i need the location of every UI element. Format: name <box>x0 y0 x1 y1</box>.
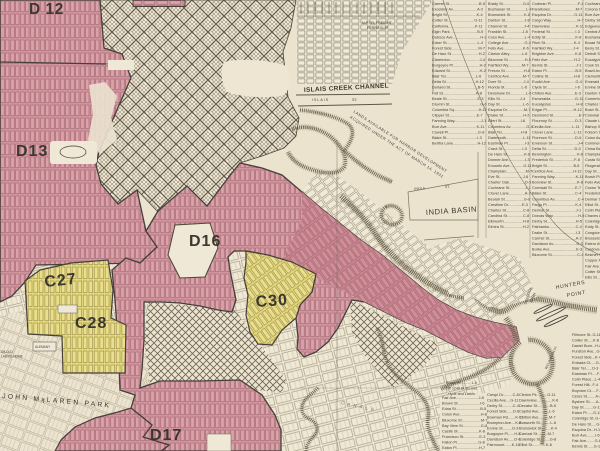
svg-text:ISLAIS: ISLAIS <box>312 98 329 102</box>
svg-text:Off 1240 Bush, bet.: Off 1240 Bush, bet. <box>446 387 478 391</box>
svg-text:D13: D13 <box>16 143 48 160</box>
svg-text:Fillmore St..G-11Collier St...: Fillmore St..G-11Collier St.....K-8Danie… <box>572 333 600 449</box>
svg-text:Brady St...................G-6: Brady St...................G-6Buchanan S… <box>488 2 534 229</box>
svg-text:Fair Ave.....................J: Fair Ave.....................J-8Brown St… <box>442 396 488 450</box>
svg-text:Cochrane St.....G-8Corona St..: Cochrane St.....G-8Corona St........K-8B… <box>585 2 600 279</box>
svg-text:Hyde and Larkin.: Hyde and Larkin. <box>448 392 476 396</box>
svg-text:FERRY SLIP: FERRY SLIP <box>367 26 388 30</box>
svg-text:Carmel St.....................: Carmel St............................B-5… <box>432 2 487 146</box>
svg-text:ST.: ST. <box>445 185 450 189</box>
svg-text:D 12: D 12 <box>29 1 64 18</box>
svg-text:Crespi Dr.........C-8Cecilia A: Crespi Dr.........C-8Cecilia Ave....G-11… <box>487 393 523 447</box>
svg-text:C30: C30 <box>255 292 288 311</box>
svg-text:CA OLD: CA OLD <box>1 350 13 354</box>
svg-text:D17: D17 <box>150 427 182 444</box>
svg-text:Broad Pl. ........ 1-5: Broad Pl. ........ 1-5 <box>446 381 477 385</box>
svg-text:C27: C27 <box>44 271 78 291</box>
svg-text:INDIA: INDIA <box>414 186 426 191</box>
svg-text:Clinton Pk..........G-11Dawnvi: Clinton Pk..........G-11Dawnview........… <box>519 393 558 447</box>
svg-text:LADIES HOME: LADIES HOME <box>1 355 23 359</box>
svg-text:C28: C28 <box>75 315 107 332</box>
svg-text:ALEMANY: ALEMANY <box>35 345 51 349</box>
svg-text:Codman Pl.....................: Codman Pl.........................F-4Far… <box>532 2 585 257</box>
svg-text:ST.: ST. <box>352 98 357 102</box>
svg-text:D16: D16 <box>189 233 221 250</box>
svg-text:N.P. RY. FREIGHT: N.P. RY. FREIGHT <box>362 21 393 25</box>
